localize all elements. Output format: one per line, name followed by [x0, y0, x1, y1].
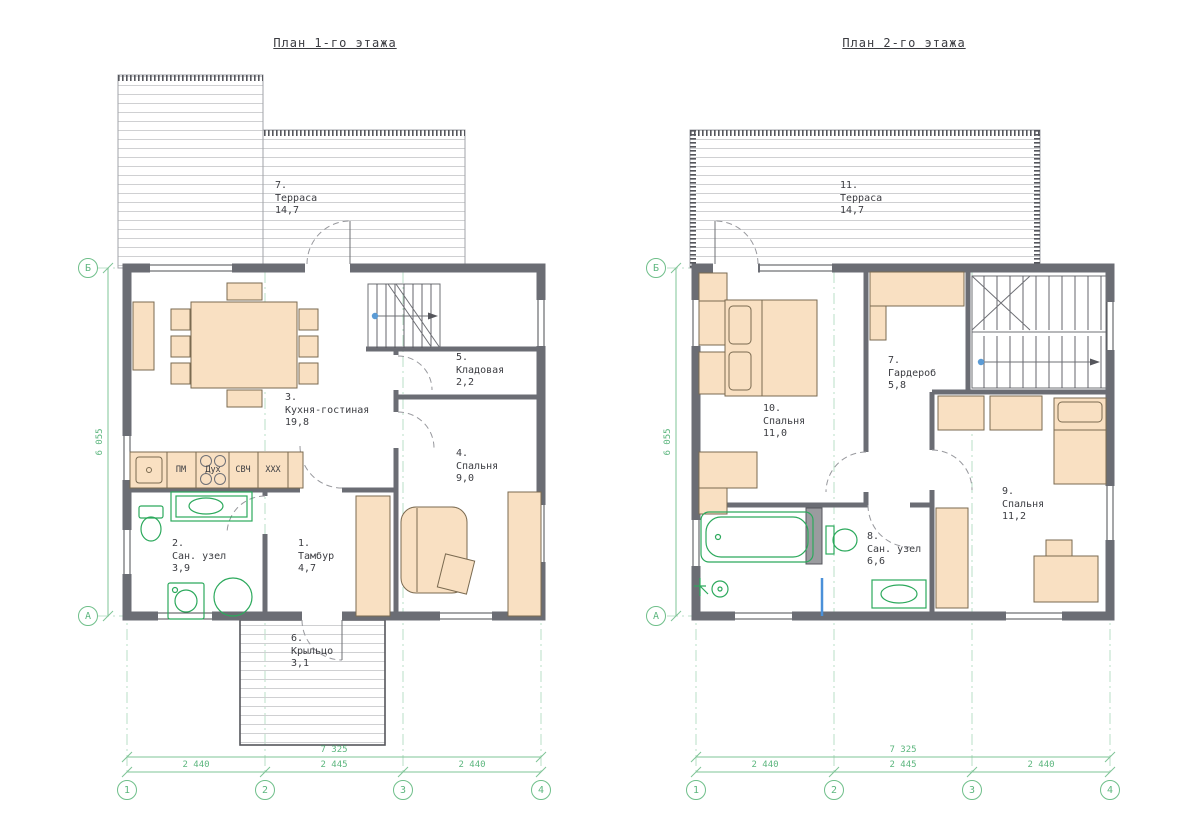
axis-2-plan1: 2: [255, 780, 275, 800]
room-label-kitchen: 3. Кухня-гостиная 19,8: [285, 392, 369, 430]
axis-A-plan1: А: [78, 606, 98, 626]
room-label-bathroom-2: 8. Сан. узел 6,6: [867, 531, 921, 569]
room-area: 14,7: [275, 205, 317, 218]
room-name: Терраса: [275, 193, 317, 206]
room-name: Сан. узел: [867, 544, 921, 557]
room-name: Тамбур: [298, 551, 334, 564]
bedroom10-furniture: [699, 273, 817, 514]
room-area: 19,8: [285, 417, 369, 430]
shower-basin-1: [214, 578, 252, 616]
room-label-bedroom-10: 10. Спальня 11,0: [763, 403, 805, 441]
room-label-hall: 1. Тамбур 4,7: [298, 538, 334, 576]
dim-height-1: 6 055: [95, 428, 105, 455]
dim-total-1: 7 325: [320, 745, 347, 755]
room-area: 9,0: [456, 473, 498, 486]
axis-4-plan2: 4: [1100, 780, 1120, 800]
staircase-1: [368, 284, 440, 348]
room-num: 4.: [456, 448, 498, 461]
room-area: 5,8: [888, 380, 936, 393]
terrace-deck-1: [118, 75, 465, 268]
stair-arrow-origin-2: [978, 359, 984, 365]
room-num: 2.: [172, 538, 226, 551]
dim-span12-2: 2 440: [751, 760, 778, 770]
room-area: 3,1: [291, 658, 333, 671]
stair-arrow-1: [428, 313, 438, 320]
axis-B-plan1: Б: [78, 258, 98, 278]
bath2-sink: [872, 580, 926, 608]
room-num: 5.: [456, 352, 504, 365]
room-label-terrace-2: 11. Терраса 14,7: [840, 180, 882, 218]
room-name: Кладовая: [456, 365, 504, 378]
dim-span34-2: 2 440: [1027, 760, 1054, 770]
bathtub: [701, 512, 813, 562]
room-label-bedroom-9: 9. Спальня 11,2: [1002, 486, 1044, 524]
room-num: 11.: [840, 180, 882, 193]
dim-height-2: 6 055: [663, 428, 673, 455]
floor-drain: [712, 581, 728, 597]
label-fridge: XXX: [265, 465, 280, 475]
bath1-sink: [189, 498, 223, 514]
room-num: 10.: [763, 403, 805, 416]
room-num: 8.: [867, 531, 921, 544]
room-name: Кухня-гостиная: [285, 405, 369, 418]
toilet-1: [139, 506, 163, 518]
hall-wardrobe: [356, 496, 390, 616]
single-bed: [1054, 398, 1106, 484]
dining-table-group: [133, 283, 318, 407]
axis-1-plan2: 1: [686, 780, 706, 800]
wardrobe-furniture: [870, 272, 964, 340]
axis-3-plan2: 3: [962, 780, 982, 800]
room-name: Спальня: [456, 461, 498, 474]
room-label-bedroom-4: 4. Спальня 9,0: [456, 448, 498, 486]
dim-span23-1: 2 445: [320, 760, 347, 770]
label-dishwasher: ПМ: [176, 465, 186, 475]
room-area: 4,7: [298, 563, 334, 576]
desk: [1034, 556, 1098, 602]
room-area: 11,2: [1002, 511, 1044, 524]
dim-span34-1: 2 440: [458, 760, 485, 770]
room-label-terrace-1: 7. Терраса 14,7: [275, 180, 317, 218]
label-oven: Дух: [205, 465, 220, 475]
room-num: 7.: [888, 355, 936, 368]
stair-arrow-2: [1090, 359, 1100, 366]
axis-3-plan1: 3: [393, 780, 413, 800]
stair-arrow-origin-1: [372, 313, 378, 319]
dim-span12-1: 2 440: [182, 760, 209, 770]
plan2-title: План 2-го этажа: [842, 36, 965, 50]
room-num: 6.: [291, 633, 333, 646]
room-name: Сан. узел: [172, 551, 226, 564]
room-label-porch: 6. Крыльцо 3,1: [291, 633, 333, 671]
axis-1-plan1: 1: [117, 780, 137, 800]
staircase-2: [972, 276, 1106, 388]
room-label-storage: 5. Кладовая 2,2: [456, 352, 504, 390]
room-name: Терраса: [840, 193, 882, 206]
room-num: 9.: [1002, 486, 1044, 499]
floor-plan-drawing: [0, 0, 1200, 817]
dim-span23-2: 2 445: [889, 760, 916, 770]
axis-4-plan1: 4: [531, 780, 551, 800]
room-area: 11,0: [763, 428, 805, 441]
room-area: 3,9: [172, 563, 226, 576]
axis-B-plan2: Б: [646, 258, 666, 278]
room-area: 2,2: [456, 377, 504, 390]
room-name: Спальня: [763, 416, 805, 429]
bedroom4-furniture: [356, 492, 541, 616]
room-num: 3.: [285, 392, 369, 405]
room-name: Гардероб: [888, 368, 936, 381]
room-name: Крыльцо: [291, 646, 333, 659]
room-label-wardrobe: 7. Гардероб 5,8: [888, 355, 936, 393]
floor-plan-sheet: План 1-го этажа План 2-го этажа 7. Терра…: [0, 0, 1200, 817]
room-label-bathroom-1: 2. Сан. узел 3,9: [172, 538, 226, 576]
plan1-title: План 1-го этажа: [273, 36, 396, 50]
axis-A-plan2: А: [646, 606, 666, 626]
label-microwave: СВЧ: [235, 465, 250, 475]
dim-total-2: 7 325: [889, 745, 916, 755]
room-area: 14,7: [840, 205, 882, 218]
room-name: Спальня: [1002, 499, 1044, 512]
room-area: 6,6: [867, 556, 921, 569]
room-num: 1.: [298, 538, 334, 551]
axis-2-plan2: 2: [824, 780, 844, 800]
room-num: 7.: [275, 180, 317, 193]
double-bed: [725, 300, 817, 396]
